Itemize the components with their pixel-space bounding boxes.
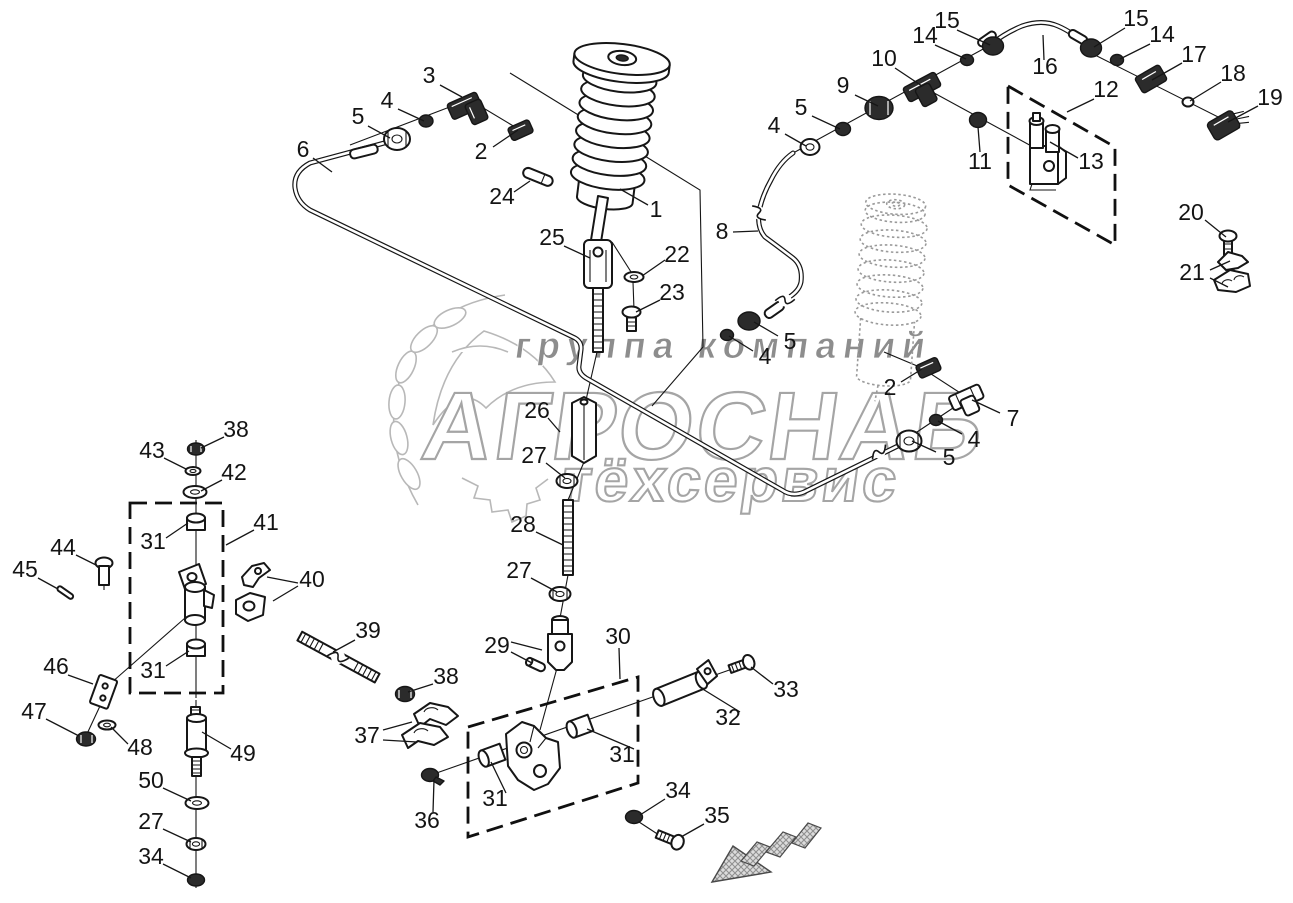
part-nut-14-right: [1111, 55, 1124, 66]
part-nut-4-topright: [801, 139, 820, 155]
part-clamp-46: [89, 674, 117, 709]
callout-28: 28: [510, 511, 536, 537]
parts-diagram-page: группа компаний АГРОСНАБ тёхсервис: [0, 0, 1293, 903]
callout-2: 2: [884, 374, 897, 400]
callout-39: 39: [355, 617, 381, 643]
callout-5: 5: [795, 94, 808, 120]
callout-21: 21: [1179, 259, 1205, 285]
direction-arrow: [712, 823, 821, 882]
callout-31: 31: [140, 528, 166, 554]
part-nut-4-ghost: [930, 415, 943, 426]
part-bushing-31-right: [565, 715, 594, 739]
part-nut-14-left: [961, 55, 974, 66]
part-sleeve-6: [349, 144, 378, 160]
part-nut-15-right: [1081, 39, 1102, 57]
part-bushing-31-bottomleft: [187, 640, 205, 657]
part-bracket-40-upper: [242, 563, 270, 587]
callout-47: 47: [21, 698, 47, 724]
part-fitting-2-topleft: [507, 119, 534, 141]
callout-4: 4: [381, 87, 394, 113]
callout-19: 19: [1257, 84, 1283, 110]
callout-15: 15: [934, 7, 960, 33]
callout-31: 31: [140, 657, 166, 683]
part-washer-42: [184, 486, 207, 498]
part-nut-15-left: [983, 37, 1004, 55]
watermark: группа компаний АГРОСНАБ тёхсервис: [387, 295, 993, 522]
part-nut-5-hose8: [738, 312, 760, 330]
callout-15: 15: [1123, 5, 1149, 31]
callout-18: 18: [1220, 60, 1246, 86]
part-clevis-29: [525, 616, 572, 673]
watermark-line3: тёхсервис: [558, 446, 905, 514]
callout-41: 41: [253, 509, 279, 535]
callout-48: 48: [127, 734, 153, 760]
callout-13: 13: [1078, 148, 1104, 174]
callout-27: 27: [521, 442, 547, 468]
part-bushing-31-left: [477, 744, 506, 768]
callout-43: 43: [139, 437, 165, 463]
callout-1: 1: [650, 196, 663, 222]
callout-25: 25: [539, 224, 565, 250]
part-nut-9: [865, 97, 893, 120]
part-spring-accumulator-1: [556, 38, 672, 214]
callout-35: 35: [704, 802, 730, 828]
arrow-stripe: [792, 823, 821, 848]
callout-4: 4: [968, 426, 981, 452]
part-oring-18: [1183, 98, 1194, 107]
callout-4: 4: [768, 112, 781, 138]
callout-36: 36: [414, 807, 440, 833]
callout-27: 27: [138, 808, 164, 834]
part-nut-38-left: [188, 443, 205, 455]
callout-14: 14: [912, 22, 938, 48]
callout-16: 16: [1032, 53, 1058, 79]
callout-9: 9: [837, 72, 850, 98]
part-tee-fitting-3: [446, 91, 488, 132]
part-pin-24: [522, 166, 554, 187]
part-nut-11: [970, 113, 987, 128]
callout-46: 46: [43, 653, 69, 679]
exploded-parts-diagram: группа компаний АГРОСНАБ тёхсервис: [0, 0, 1293, 903]
part-nut-47: [77, 732, 96, 746]
part-bolt-36: [422, 769, 445, 786]
part-nut-5-ghost: [897, 431, 922, 452]
callout-2: 2: [475, 138, 488, 164]
part-nut-4-hose8: [721, 330, 734, 341]
part-rod-28: [563, 500, 573, 575]
part-clamp-37-lower: [402, 723, 448, 748]
callout-4: 4: [759, 343, 772, 369]
part-nut-34-bottomright: [626, 811, 643, 824]
part-clamp-21: [1214, 252, 1250, 292]
part-stud-49: [185, 707, 208, 776]
callout-32: 32: [715, 704, 741, 730]
callout-17: 17: [1181, 41, 1207, 67]
callout-34: 34: [665, 777, 691, 803]
callout-5: 5: [784, 328, 797, 354]
callout-22: 22: [664, 241, 690, 267]
callout-5: 5: [943, 444, 956, 470]
part-nut-34-bottomleft: [188, 874, 205, 886]
part-washer-50: [186, 797, 209, 809]
part-standoff-26: [572, 397, 596, 463]
callout-31: 31: [482, 785, 508, 811]
part-bushing-31-topleft: [187, 514, 205, 531]
part-washer-22: [625, 272, 644, 282]
pipe-8: [759, 153, 802, 308]
callout-3: 3: [423, 62, 436, 88]
callout-5: 5: [352, 103, 365, 129]
callout-26: 26: [524, 397, 550, 423]
callout-44: 44: [50, 534, 76, 560]
part-cylinder-32: [648, 659, 719, 707]
callout-20: 20: [1178, 199, 1204, 225]
part-plug-19: [1206, 103, 1252, 141]
callout-23: 23: [659, 279, 685, 305]
part-bolt-44: [96, 558, 113, 586]
callout-37: 37: [354, 722, 380, 748]
part-bracket-40-lower: [236, 593, 265, 621]
callout-11: 11: [968, 148, 992, 174]
callout-33: 33: [773, 676, 799, 702]
part-bolt-33: [727, 653, 756, 676]
callout-24: 24: [489, 183, 515, 209]
callout-27: 27: [506, 557, 532, 583]
callout-40: 40: [299, 566, 325, 592]
callout-10: 10: [871, 45, 897, 71]
part-pin-45: [56, 585, 74, 599]
callout-14: 14: [1149, 21, 1175, 47]
part-lever-41: [179, 564, 214, 625]
part-bolt-35: [654, 827, 686, 851]
callout-12: 12: [1093, 76, 1119, 102]
callout-31: 31: [609, 741, 635, 767]
callout-45: 45: [12, 556, 38, 582]
callout-38: 38: [223, 416, 249, 442]
callout-50: 50: [138, 767, 164, 793]
callout-49: 49: [230, 740, 256, 766]
callout-30: 30: [605, 623, 631, 649]
part-nut-5-topright: [836, 123, 851, 136]
callout-38: 38: [433, 663, 459, 689]
callout-6: 6: [297, 136, 310, 162]
callout-34: 34: [138, 843, 164, 869]
part-nut-27-upper: [557, 474, 578, 488]
callout-42: 42: [221, 459, 247, 485]
callout-7: 7: [1007, 405, 1020, 431]
part-washer-43: [186, 467, 201, 475]
arrow-stripe: [766, 832, 796, 857]
part-nut-27-bottomleft: [187, 838, 206, 850]
callout-29: 29: [484, 632, 510, 658]
part-nut-5-topleft: [384, 128, 410, 150]
part-nut-4-topleft: [419, 115, 433, 127]
part-nut-38-center: [396, 687, 415, 702]
callout-8: 8: [716, 218, 729, 244]
